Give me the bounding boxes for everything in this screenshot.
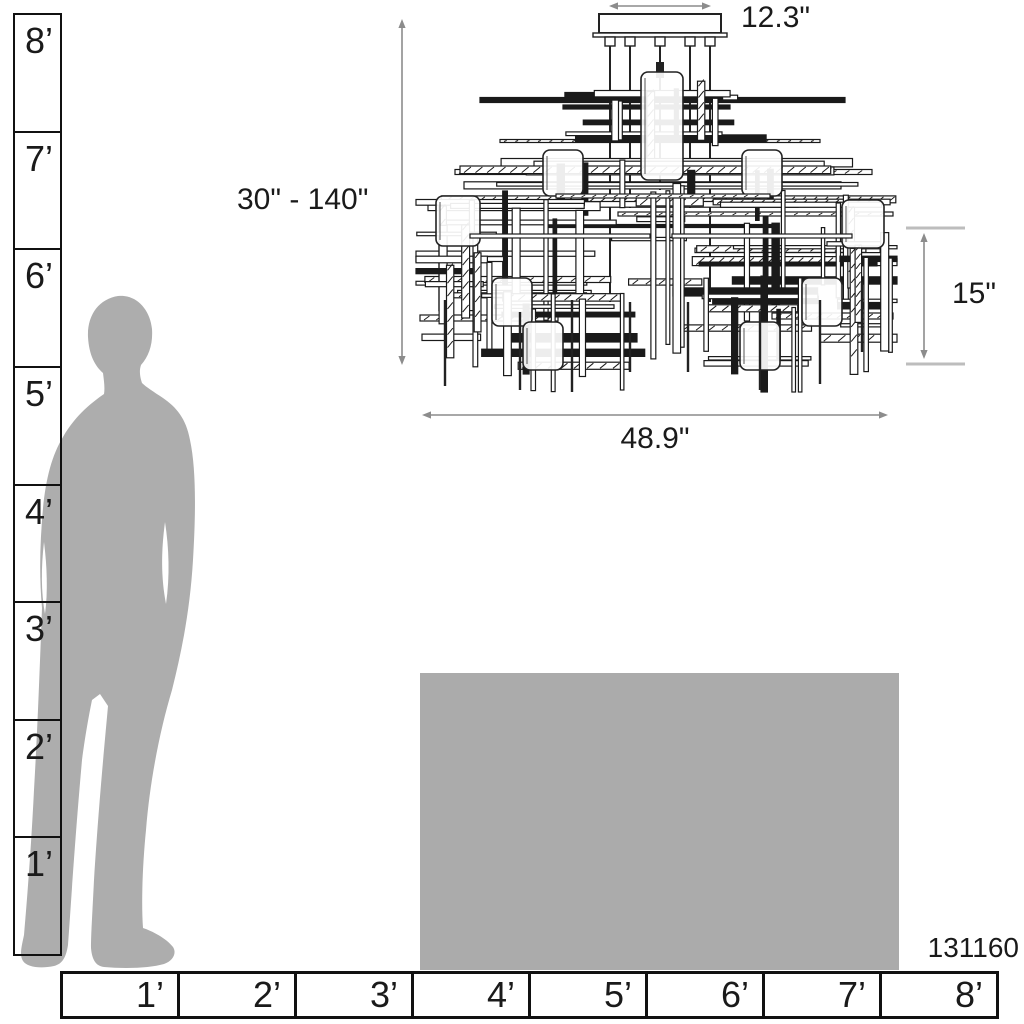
vertical-ruler-segment-5ft: 5’ [13, 366, 62, 486]
vertical-ruler-label: 2’ [25, 729, 53, 765]
scale-diagram-canvas: 8’7’6’5’4’3’2’1’ 1’2’3’4’5’6’7’8’ 12.3" … [0, 0, 1024, 1024]
product-model-number: 131160 [820, 932, 1019, 964]
diagram-artwork [0, 0, 1024, 1024]
vertical-ruler-segment-1ft: 1’ [13, 836, 62, 956]
horizontal-ruler-segment-8ft: 8’ [879, 971, 999, 1019]
vertical-ruler-label: 1’ [25, 846, 53, 882]
horizontal-ruler-segment-1ft: 1’ [60, 971, 180, 1019]
vertical-ruler-label: 8’ [25, 23, 53, 59]
vertical-ruler-segment-7ft: 7’ [13, 131, 62, 251]
chandelier-drawing [416, 14, 897, 392]
vertical-ruler-label: 3’ [25, 611, 53, 647]
horizontal-ruler-segment-7ft: 7’ [762, 971, 882, 1019]
table-silhouette [420, 673, 899, 970]
horizontal-ruler-segment-6ft: 6’ [645, 971, 765, 1019]
vertical-ruler-label: 5’ [25, 376, 53, 412]
horizontal-ruler-label: 4’ [487, 977, 515, 1013]
fixture-width-dimension: 48.9" [420, 422, 890, 457]
vertical-ruler-segment-6ft: 6’ [13, 248, 62, 368]
fixture-height-dimension: 15" [952, 277, 996, 312]
horizontal-ruler-segment-5ft: 5’ [528, 971, 648, 1019]
hanging-height-dimension: 30" - 140" [237, 183, 368, 218]
vertical-ruler-label: 7’ [25, 141, 53, 177]
horizontal-ruler-label: 1’ [136, 977, 164, 1013]
horizontal-ruler-label: 5’ [604, 977, 632, 1013]
vertical-ruler-segment-2ft: 2’ [13, 719, 62, 839]
vertical-ruler-segment-3ft: 3’ [13, 601, 62, 721]
vertical-ruler-segment-8ft: 8’ [13, 13, 62, 133]
vertical-ruler-label: 6’ [25, 258, 53, 294]
vertical-height-ruler: 8’7’6’5’4’3’2’1’ [13, 13, 62, 970]
horizontal-ruler-segment-4ft: 4’ [411, 971, 531, 1019]
horizontal-ruler-label: 2’ [253, 977, 281, 1013]
horizontal-ruler-label: 7’ [838, 977, 866, 1013]
horizontal-ruler-segment-2ft: 2’ [177, 971, 297, 1019]
vertical-ruler-label: 4’ [25, 494, 53, 530]
horizontal-ruler-label: 6’ [721, 977, 749, 1013]
horizontal-ruler-label: 3’ [370, 977, 398, 1013]
horizontal-width-ruler: 1’2’3’4’5’6’7’8’ [60, 971, 999, 1019]
vertical-ruler-segment-4ft: 4’ [13, 484, 62, 604]
canopy-width-dimension: 12.3" [741, 1, 810, 36]
horizontal-ruler-label: 8’ [955, 977, 983, 1013]
horizontal-ruler-segment-3ft: 3’ [294, 971, 414, 1019]
